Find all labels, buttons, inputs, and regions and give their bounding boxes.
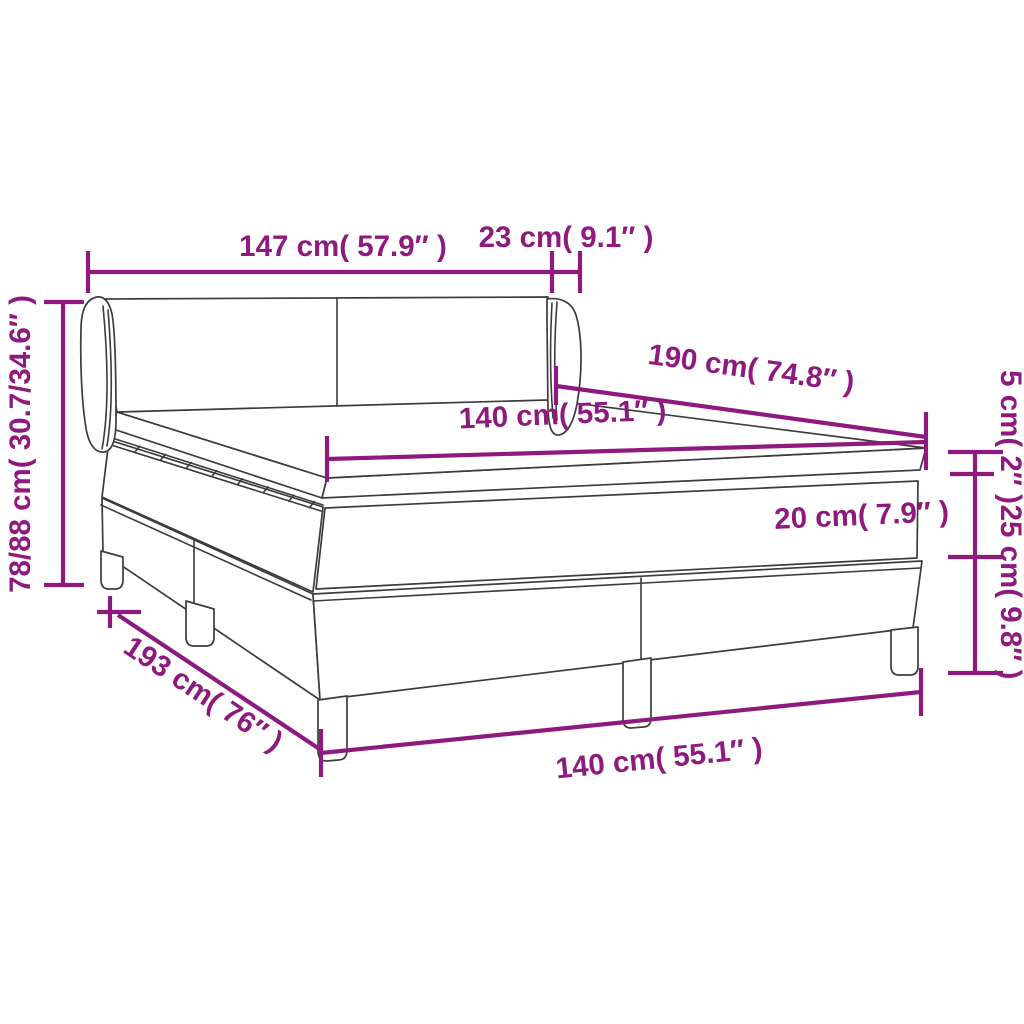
headboard-panel [95,297,548,412]
leg-front-middle [623,658,651,728]
label-headboard-height: 78/88 cm( 30.7/34.6″ ) [4,295,37,593]
leg-front-right [891,627,918,675]
bed-dimension-diagram: 147 cm( 57.9″ ) 23 cm( 9.1″ ) 78/88 cm( … [0,0,1024,1024]
label-base-height: 25 cm( 9.8″ ) [994,505,1024,680]
leg-back-left [101,551,123,589]
label-headboard-wing-depth: 23 cm( 9.1″ ) [479,221,654,254]
dimension-diagram-svg: 147 cm( 57.9″ ) 23 cm( 9.1″ ) 78/88 cm( … [0,0,1024,1024]
label-headboard-width: 147 cm( 57.9″ ) [239,230,447,263]
leg-side-middle [186,601,214,646]
label-topper-thickness: 5 cm( 2″ ) [994,370,1024,504]
